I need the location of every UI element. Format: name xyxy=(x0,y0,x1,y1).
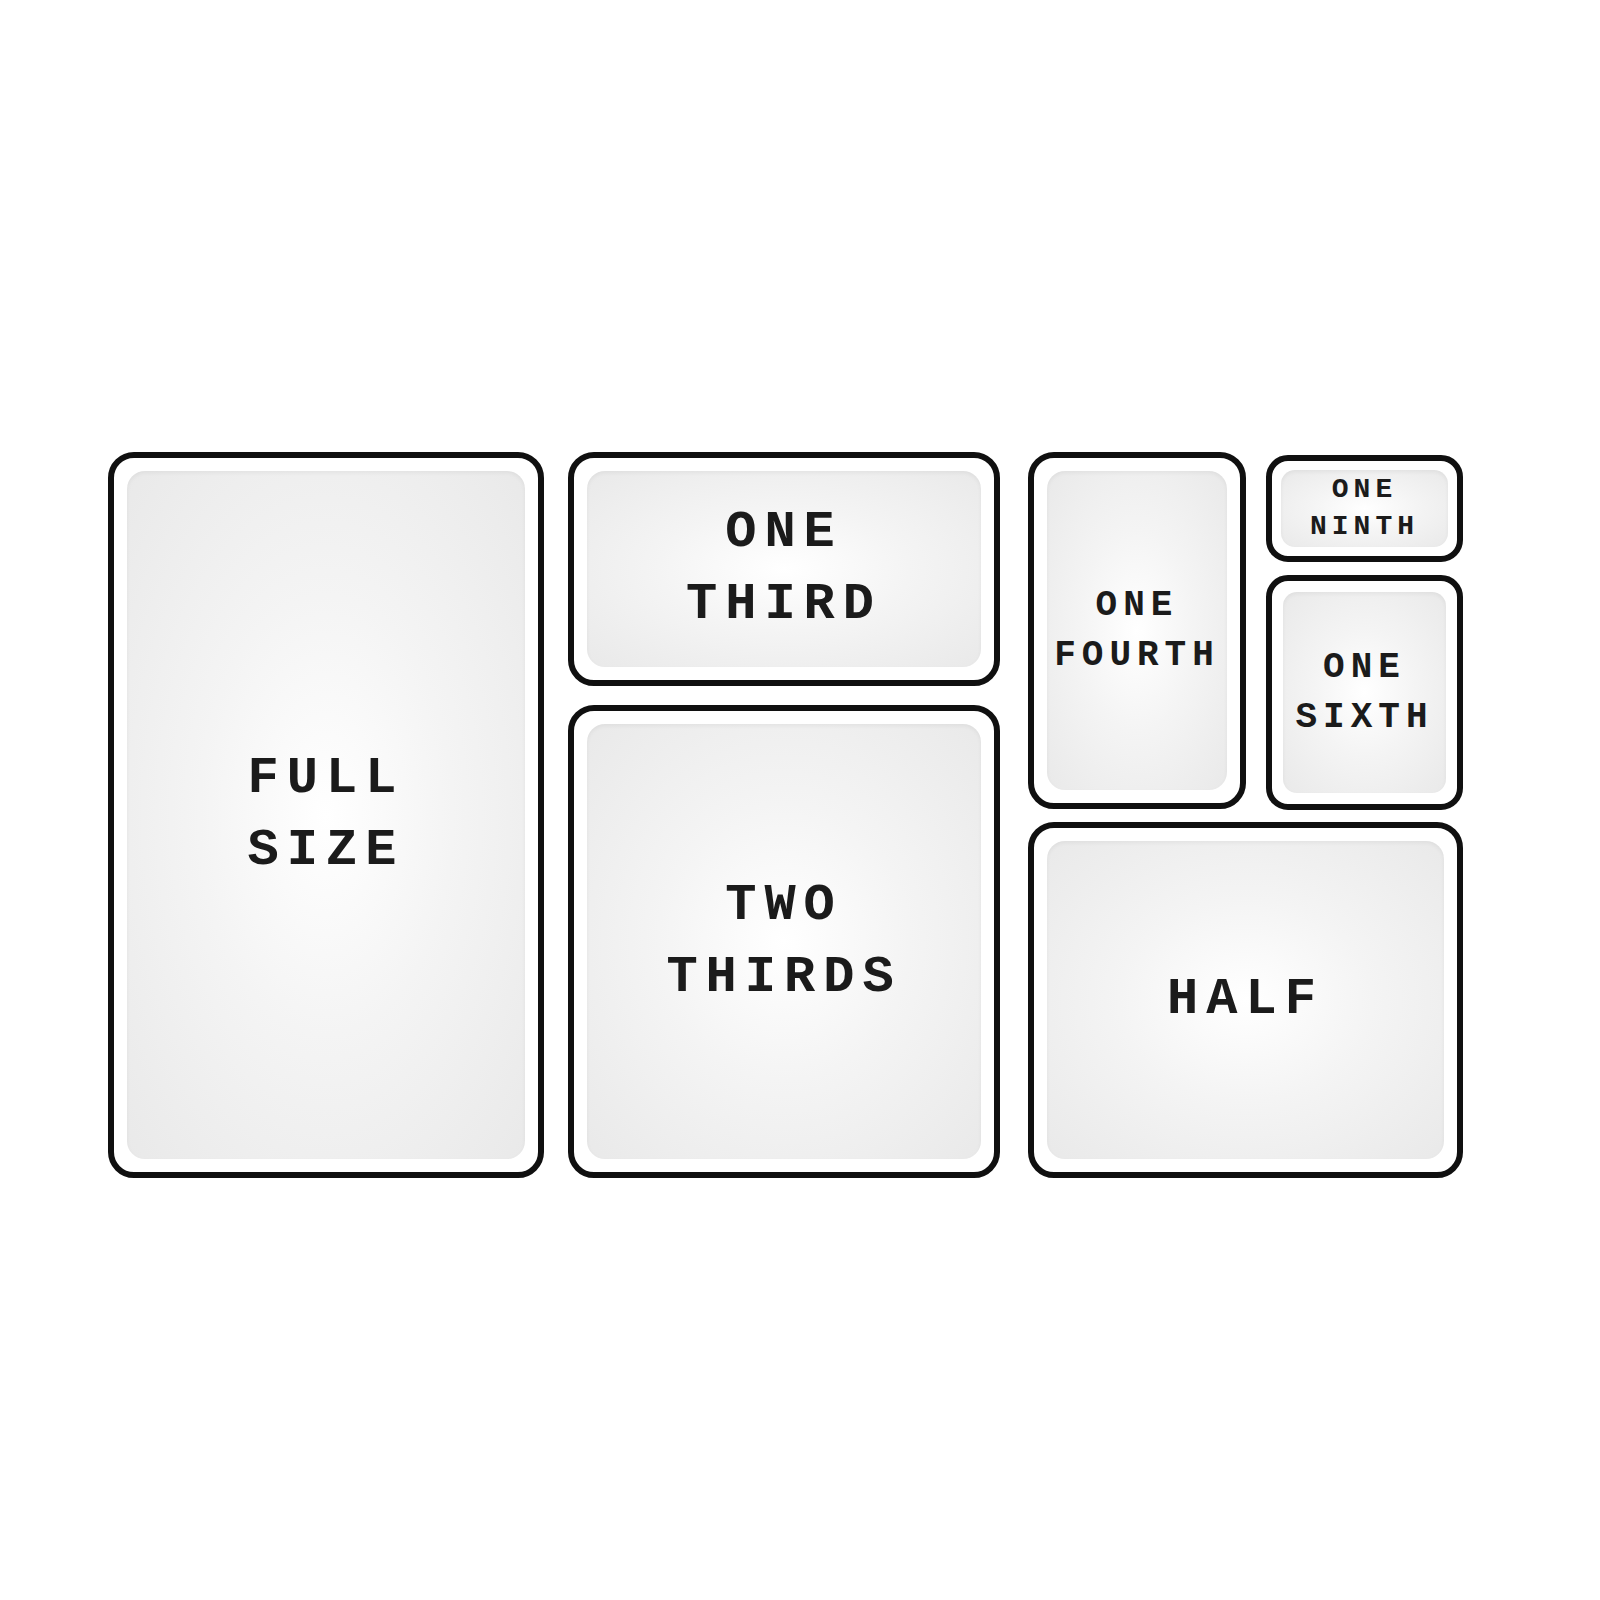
pan-full-size-surface: FULL SIZE xyxy=(127,471,525,1159)
pan-one-ninth-label: ONE NINTH xyxy=(1310,472,1419,545)
label-line: THIRDS xyxy=(666,942,901,1014)
pan-two-thirds-surface: TWO THIRDS xyxy=(587,724,981,1159)
pan-one-third: ONE THIRD xyxy=(568,452,1000,686)
pan-one-ninth-surface: ONE NINTH xyxy=(1281,470,1448,547)
label-line: NINTH xyxy=(1310,509,1419,545)
pan-full-size-label: FULL SIZE xyxy=(248,743,405,887)
label-line: ONE xyxy=(1295,643,1433,693)
pan-one-fourth-surface: ONE FOURTH xyxy=(1047,471,1227,790)
pan-half-surface: HALF xyxy=(1047,841,1444,1159)
label-line: SIZE xyxy=(248,815,405,887)
pan-two-thirds: TWO THIRDS xyxy=(568,705,1000,1178)
pan-one-fourth-label: ONE FOURTH xyxy=(1054,581,1220,680)
pan-full-size: FULL SIZE xyxy=(108,452,544,1178)
label-line: SIXTH xyxy=(1295,693,1433,743)
pan-one-fourth: ONE FOURTH xyxy=(1028,452,1246,809)
pan-one-sixth-surface: ONE SIXTH xyxy=(1283,592,1446,793)
pan-half: HALF xyxy=(1028,822,1463,1178)
label-line: FULL xyxy=(248,743,405,815)
pan-one-third-label: ONE THIRD xyxy=(686,497,882,641)
pan-half-label: HALF xyxy=(1167,964,1324,1036)
pan-one-third-surface: ONE THIRD xyxy=(587,471,981,667)
label-line: FOURTH xyxy=(1054,631,1220,681)
label-line: ONE xyxy=(1054,581,1220,631)
label-line: ONE xyxy=(686,497,882,569)
pan-size-diagram: FULL SIZE ONE THIRD TWO THIRDS ONE FOURT… xyxy=(0,0,1600,1600)
label-line: HALF xyxy=(1167,964,1324,1036)
label-line: THIRD xyxy=(686,569,882,641)
pan-one-sixth: ONE SIXTH xyxy=(1266,575,1463,810)
pan-one-ninth: ONE NINTH xyxy=(1266,455,1463,562)
label-line: ONE xyxy=(1310,472,1419,508)
pan-two-thirds-label: TWO THIRDS xyxy=(666,870,901,1014)
label-line: TWO xyxy=(666,870,901,942)
pan-one-sixth-label: ONE SIXTH xyxy=(1295,643,1433,742)
